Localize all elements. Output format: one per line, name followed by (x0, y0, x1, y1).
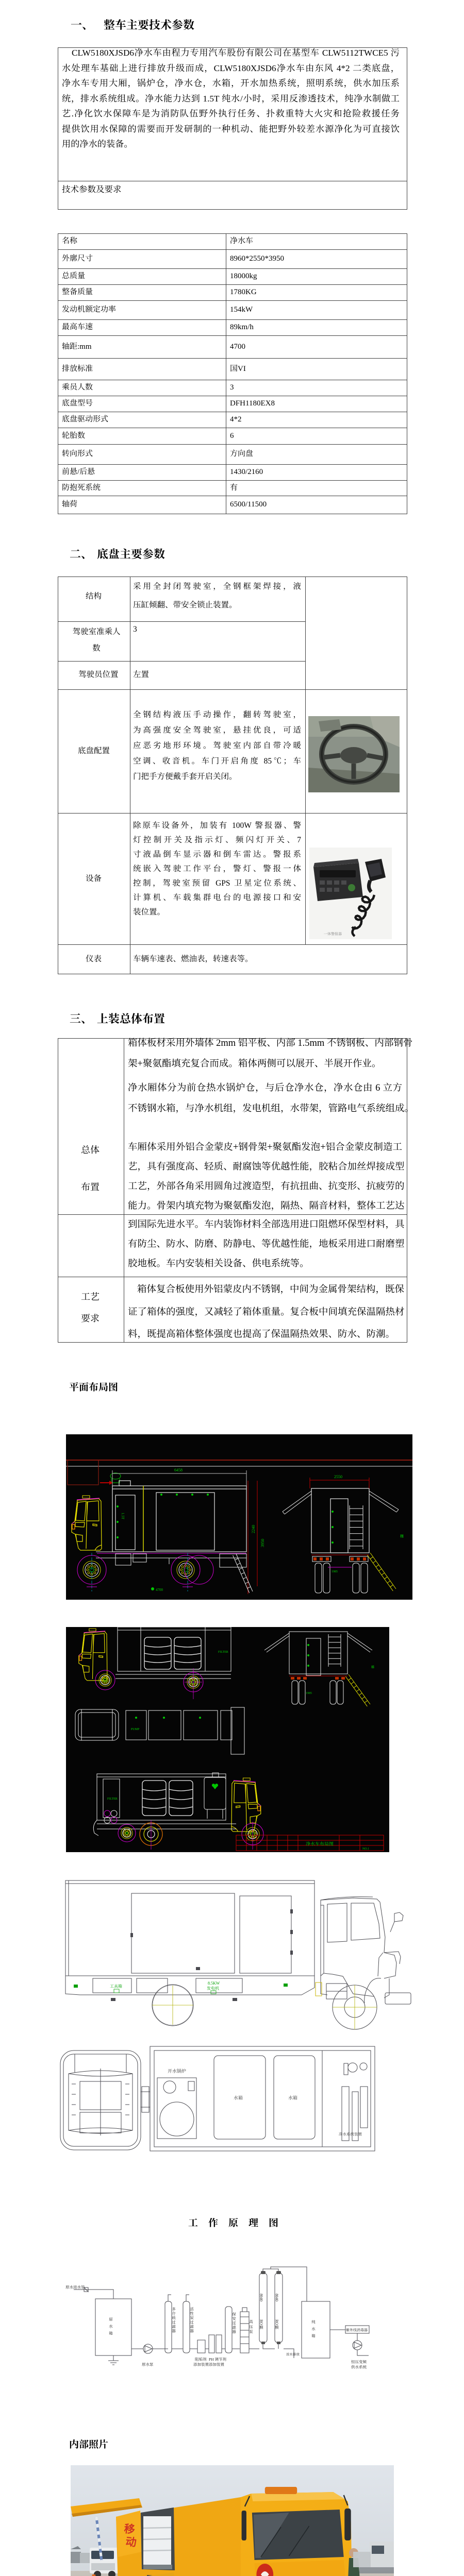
svg-text:多介质过滤器: 多介质过滤器 (171, 2307, 176, 2333)
svg-text:8040: 8040 (259, 2294, 264, 2301)
svg-text:恒压变频: 恒压变频 (351, 2360, 367, 2364)
svg-text:水箱: 水箱 (234, 2095, 243, 2100)
svg-text:高压泵: 高压泵 (248, 2319, 253, 2334)
svg-text:紫外线消毒器: 紫外线消毒器 (346, 2328, 368, 2332)
svg-text:一体警报器: 一体警报器 (324, 932, 342, 936)
svg-text:供水系统: 供水系统 (351, 2365, 367, 2369)
svg-text:浓水排放: 浓水排放 (286, 2352, 300, 2357)
svg-text:原水箱: 原水箱 (108, 2317, 113, 2338)
svg-text:工具箱: 工具箱 (110, 1984, 122, 1989)
svg-text:FILTER: FILTER (107, 1798, 118, 1801)
svg-text:开水锅炉: 开水锅炉 (168, 2069, 186, 2074)
svg-text:发电机: 发电机 (207, 1986, 219, 1991)
svg-text:FILTER: FILTER (218, 1651, 228, 1654)
svg-text:RO膜: RO膜 (259, 2319, 263, 2329)
svg-text:2550: 2550 (334, 1475, 342, 1479)
svg-text:活性炭过滤器: 活性炭过滤器 (189, 2307, 194, 2333)
svg-text:梯: 梯 (400, 1534, 404, 1538)
svg-text:原水泵: 原水泵 (142, 2362, 154, 2367)
svg-text:NO.1: NO.1 (362, 1848, 369, 1851)
svg-text:1985: 1985 (306, 1692, 312, 1695)
svg-text:2240: 2240 (251, 1525, 256, 1533)
svg-text:3950: 3950 (260, 1539, 265, 1547)
svg-text:动: 动 (125, 2535, 137, 2549)
svg-text:移: 移 (123, 2522, 135, 2536)
svg-text:保安过滤器: 保安过滤器 (231, 2312, 236, 2334)
svg-text:添加装置: 添加装置 (193, 2362, 209, 2367)
svg-text:8.5KW: 8.5KW (208, 1981, 220, 1986)
svg-text:净水系统装置: 净水系统装置 (339, 2132, 362, 2137)
svg-text:阻垢剂: 阻垢剂 (195, 2357, 207, 2362)
svg-text:PH 调节剂: PH 调节剂 (209, 2357, 226, 2362)
svg-text:1985: 1985 (332, 1570, 338, 1573)
svg-text:添加装置: 添加装置 (209, 2362, 224, 2367)
svg-text:水箱: 水箱 (288, 2095, 297, 2100)
svg-text:8040: 8040 (275, 2294, 279, 2301)
svg-text:纯水箱: 纯水箱 (311, 2319, 316, 2341)
svg-text:4700: 4700 (156, 1588, 163, 1592)
svg-text:净水车布局图: 净水车布局图 (306, 1841, 334, 1846)
svg-text:梯: 梯 (371, 1665, 374, 1669)
svg-text:1.5T: 1.5T (121, 1513, 125, 1520)
svg-text:RO膜: RO膜 (274, 2319, 279, 2329)
svg-text:6458: 6458 (174, 1468, 183, 1472)
svg-text:原水进水管: 原水进水管 (65, 2285, 85, 2290)
svg-text:PUMP: PUMP (131, 1728, 140, 1731)
